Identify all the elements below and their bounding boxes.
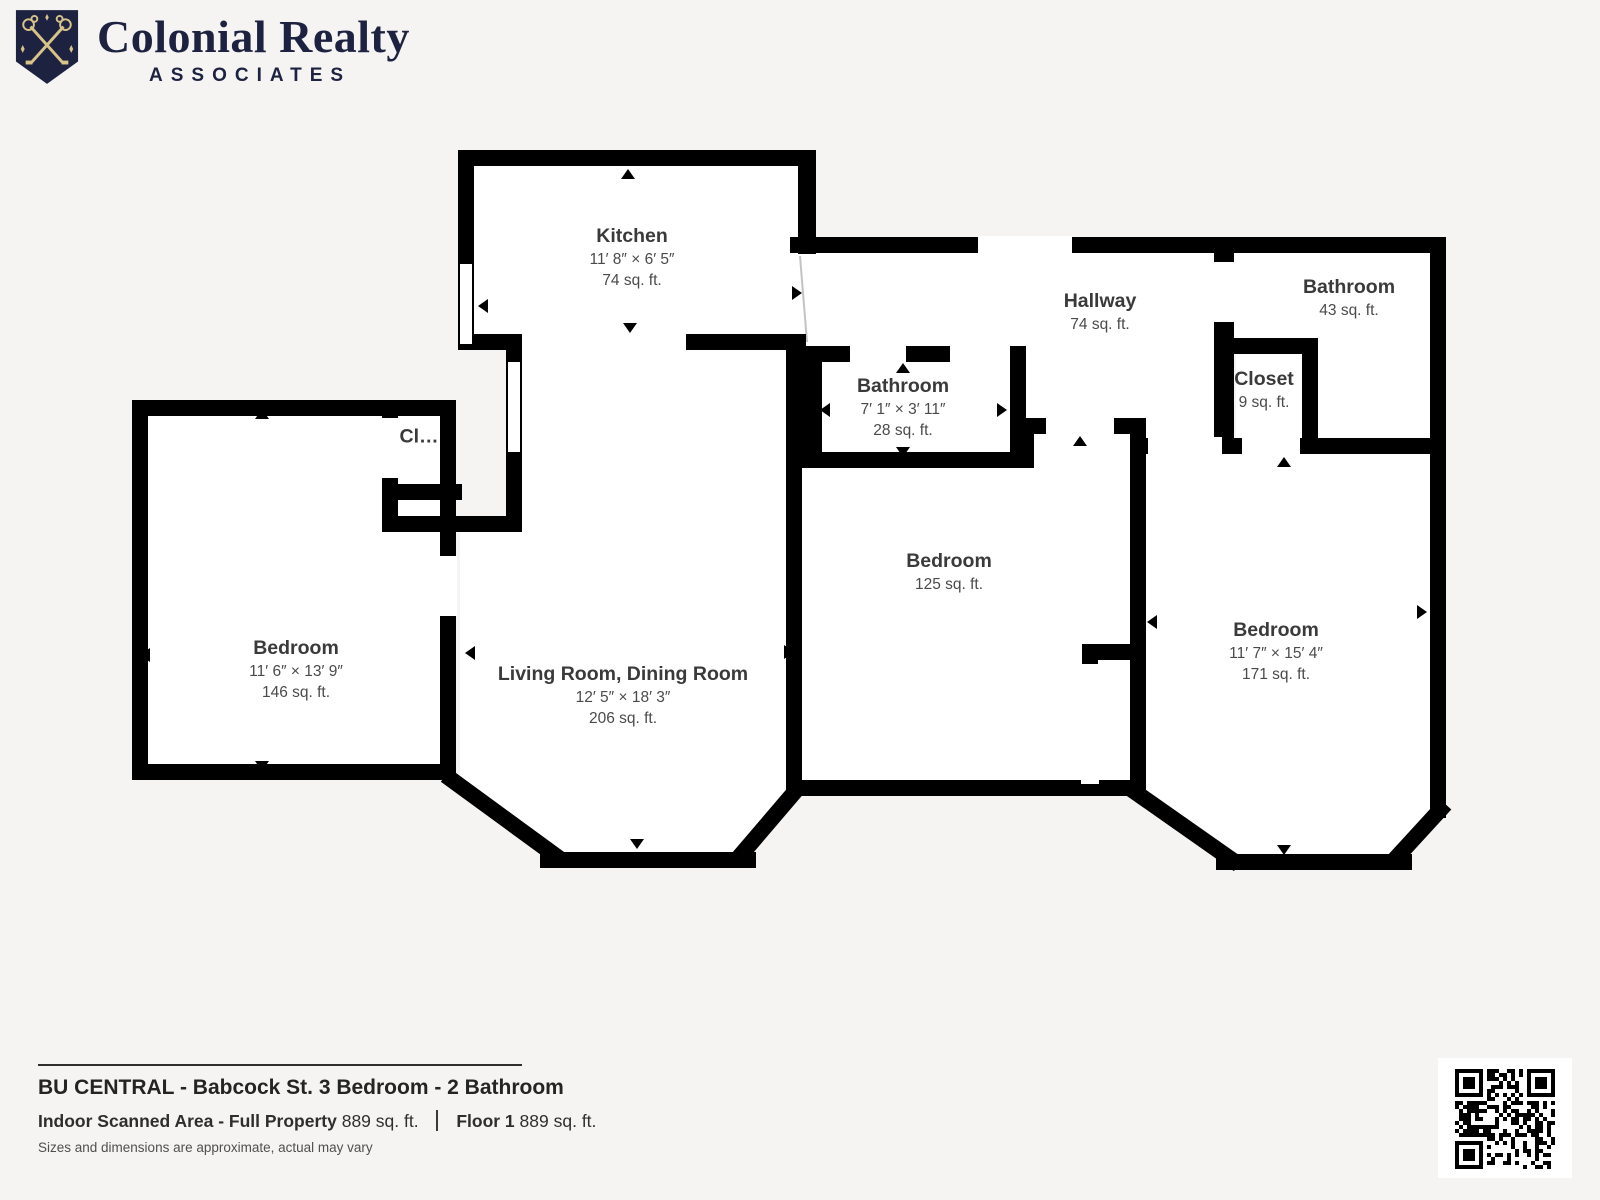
brand-subname: ASSOCIATES	[149, 65, 351, 87]
room-label-bathroom-top: Bathroom 43 sq. ft.	[1303, 275, 1395, 321]
footer: BU CENTRAL - Babcock St. 3 Bedroom - 2 B…	[38, 1064, 738, 1155]
room-label-kitchen: Kitchen 11′ 8″ × 6′ 5″ 74 sq. ft.	[589, 224, 674, 292]
room-label-bedroom-right: Bedroom 11′ 7″ × 15′ 4″ 171 sq. ft.	[1229, 618, 1323, 686]
room-label-bedroom-middle: Bedroom 125 sq. ft.	[906, 549, 992, 595]
floor-label: Floor 1	[456, 1111, 514, 1131]
room-label-closet-right: Closet 9 sq. ft.	[1234, 367, 1294, 413]
floor-plan-page: Colonial Realty ASSOCIATES Kitchen 11′ 8…	[0, 0, 1600, 1200]
floor-value: 889 sq. ft.	[520, 1111, 597, 1131]
scanned-area-value: 889 sq. ft.	[342, 1111, 419, 1131]
room-label-closet-left: Cl…	[400, 424, 439, 449]
room-label-bathroom-middle: Bathroom 7′ 1″ × 3′ 11″ 28 sq. ft.	[857, 374, 949, 442]
room-label-hallway: Hallway 74 sq. ft.	[1064, 289, 1137, 335]
footer-divider-line	[38, 1064, 522, 1066]
qr-code	[1438, 1058, 1572, 1178]
floor-plan	[0, 0, 1600, 1200]
crossed-keys-shield-icon	[14, 8, 80, 86]
qr-code-pattern	[1455, 1069, 1555, 1169]
room-label-bedroom-left: Bedroom 11′ 6″ × 13′ 9″ 146 sq. ft.	[249, 636, 343, 704]
disclaimer-text: Sizes and dimensions are approximate, ac…	[38, 1140, 738, 1155]
brand-name: Colonial Realty	[97, 10, 410, 63]
room-label-living-dining: Living Room, Dining Room 12′ 5″ × 18′ 3″…	[498, 662, 748, 730]
scanned-area-label: Indoor Scanned Area - Full Property	[38, 1111, 337, 1131]
listing-title: BU CENTRAL - Babcock St. 3 Bedroom - 2 B…	[38, 1076, 738, 1100]
brand-logo: Colonial Realty ASSOCIATES	[14, 8, 434, 88]
vertical-divider	[436, 1110, 438, 1131]
area-summary: Indoor Scanned Area - Full Property 889 …	[38, 1110, 738, 1132]
